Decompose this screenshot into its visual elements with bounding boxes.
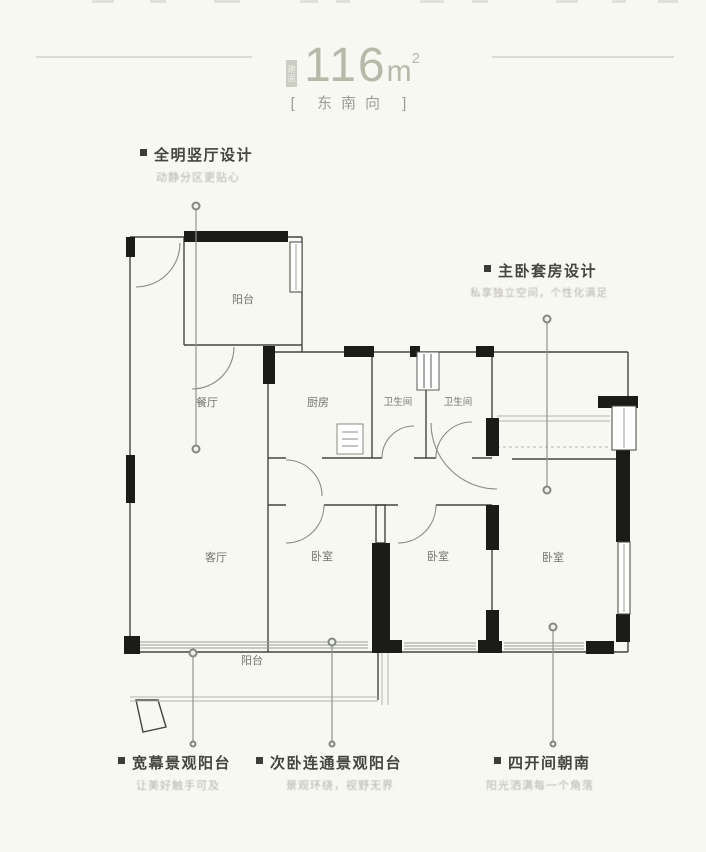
square-bullet-icon — [118, 757, 125, 764]
annotation-subtitle: 私享独立空间，个性化满足 — [470, 285, 608, 300]
room-label-dining: 餐厅 — [196, 395, 218, 409]
annotation-bedroom-balcony: 次卧连通景观阳台 景观环绕，视野无界 — [256, 752, 402, 793]
annotation-title: 次卧连通景观阳台 — [270, 752, 402, 773]
square-bullet-icon — [494, 757, 501, 764]
floorplan-page: { "title": { "prefix": "建面", "area_value… — [0, 0, 706, 852]
annotation-south-facing: 四开间朝南 阳光洒满每一个角落 — [494, 752, 594, 793]
room-label-kitchen: 厨房 — [307, 396, 329, 409]
room-label-bath2: 卫生间 — [444, 396, 473, 408]
annotation-subtitle: 景观环绕，视野无界 — [286, 777, 402, 793]
room-label-bath1: 卫生间 — [384, 396, 413, 408]
annotation-bright-hall: 全明竖厅设计 动静分区更贴心 — [140, 144, 253, 185]
annotation-title: 四开间朝南 — [508, 752, 591, 773]
room-label-living: 客厅 — [205, 550, 227, 564]
square-bullet-icon — [484, 265, 491, 272]
annotation-subtitle: 让美好触手可及 — [136, 777, 231, 793]
annotation-subtitle: 动静分区更贴心 — [156, 169, 253, 185]
annotation-master-suite: 主卧套房设计 私享独立空间，个性化满足 — [484, 260, 608, 300]
annotation-subtitle: 阳光洒满每一个角落 — [486, 777, 594, 793]
annotation-title: 宽幕景观阳台 — [132, 752, 231, 773]
square-bullet-icon — [140, 149, 147, 156]
room-label-balcony-top: 阳台 — [232, 292, 254, 306]
room-label-bedroom2: 卧室 — [311, 549, 333, 563]
square-bullet-icon — [256, 757, 263, 764]
room-label-balcony-bottom: 阳台 — [241, 653, 263, 667]
room-label-master: 卧室 — [542, 550, 564, 564]
doors-group — [136, 243, 497, 543]
annotation-title: 全明竖厅设计 — [154, 144, 253, 165]
annotation-wide-balcony: 宽幕景观阳台 让美好触手可及 — [118, 752, 231, 793]
room-label-bedroom3: 卧室 — [427, 549, 449, 563]
annotation-title: 主卧套房设计 — [498, 260, 597, 281]
floor-plan: 阳台 餐厅 厨房 卫生间 卫生间 客厅 卧室 卧室 卧室 阳台 — [0, 0, 706, 852]
